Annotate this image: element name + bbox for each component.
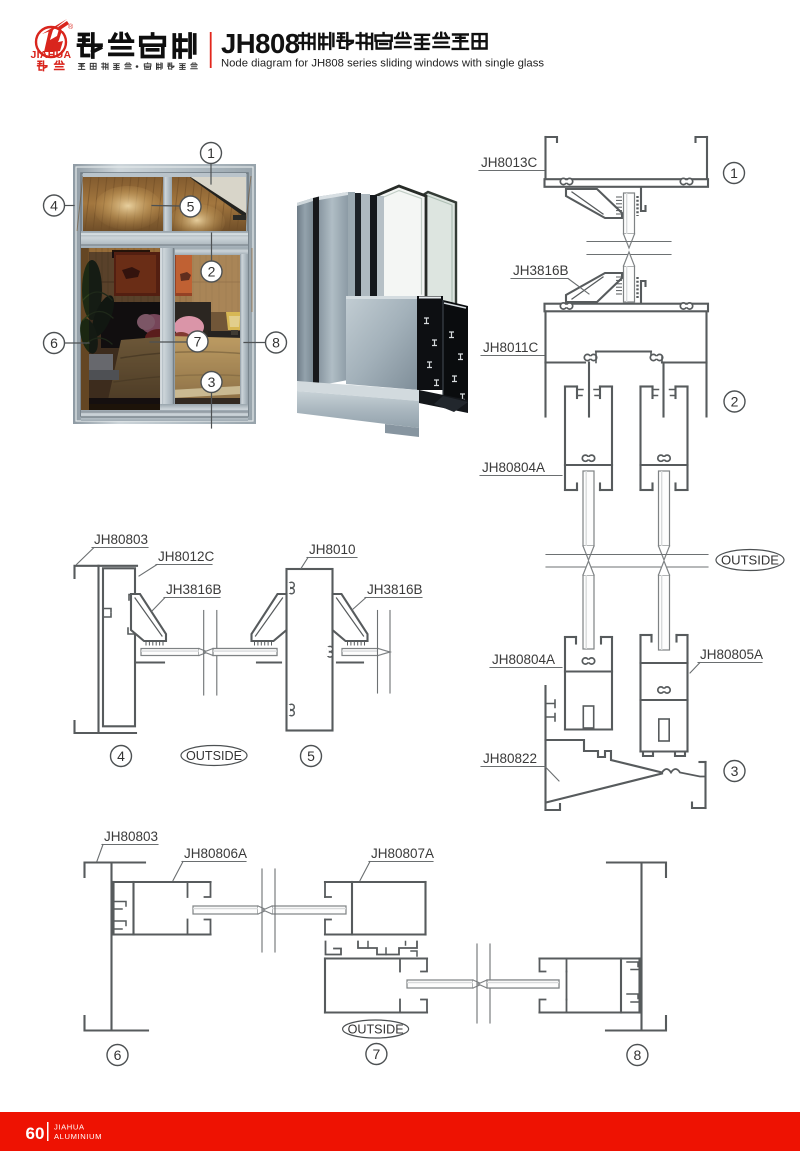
svg-text:60: 60: [26, 1124, 45, 1143]
svg-text:4: 4: [50, 198, 58, 214]
svg-text:ALUMINIUM: ALUMINIUM: [54, 1132, 102, 1141]
svg-text:6: 6: [114, 1047, 122, 1063]
svg-text:OUTSIDE: OUTSIDE: [721, 553, 779, 567]
svg-text:JH80804A: JH80804A: [482, 460, 545, 475]
svg-text:5: 5: [307, 748, 315, 764]
svg-text:4: 4: [117, 748, 125, 764]
svg-text:JH3816B: JH3816B: [513, 263, 569, 278]
svg-text:JH8010: JH8010: [309, 542, 356, 557]
svg-text:JH80822: JH80822: [483, 751, 537, 766]
svg-text:JH80806A: JH80806A: [184, 846, 247, 861]
svg-text:®: ®: [68, 23, 74, 31]
svg-text:JIAHUA: JIAHUA: [54, 1123, 85, 1132]
svg-text:JH8011C: JH8011C: [483, 340, 539, 355]
svg-text:Node diagram for JH808 series: Node diagram for JH808 series sliding wi…: [221, 58, 544, 70]
svg-text:JH80807A: JH80807A: [371, 846, 434, 861]
svg-text:3: 3: [208, 374, 216, 390]
svg-text:JH3816B: JH3816B: [367, 582, 423, 597]
svg-text:1: 1: [730, 165, 738, 181]
svg-text:JH80803: JH80803: [104, 829, 158, 844]
svg-text:JH8012C: JH8012C: [158, 549, 215, 564]
svg-text:1: 1: [207, 145, 215, 161]
svg-text:8: 8: [272, 335, 280, 351]
svg-text:JH3816B: JH3816B: [166, 582, 222, 597]
svg-text:8: 8: [634, 1047, 642, 1063]
svg-text:JIAHUA: JIAHUA: [31, 49, 72, 61]
svg-text:JH8013C: JH8013C: [481, 155, 538, 170]
svg-text:JH808: JH808: [221, 28, 300, 59]
svg-text:JH80804A: JH80804A: [492, 652, 555, 667]
svg-text:OUTSIDE: OUTSIDE: [186, 749, 242, 763]
svg-text:7: 7: [194, 334, 202, 350]
svg-text:JH80805A: JH80805A: [700, 647, 763, 662]
svg-text:JH80803: JH80803: [94, 532, 148, 547]
svg-text:7: 7: [373, 1046, 381, 1062]
svg-text:3: 3: [731, 763, 739, 779]
svg-text:2: 2: [731, 394, 739, 410]
svg-text:2: 2: [208, 264, 216, 280]
svg-text:6: 6: [50, 335, 58, 351]
svg-text:5: 5: [187, 199, 195, 215]
svg-text:OUTSIDE: OUTSIDE: [348, 1022, 404, 1036]
